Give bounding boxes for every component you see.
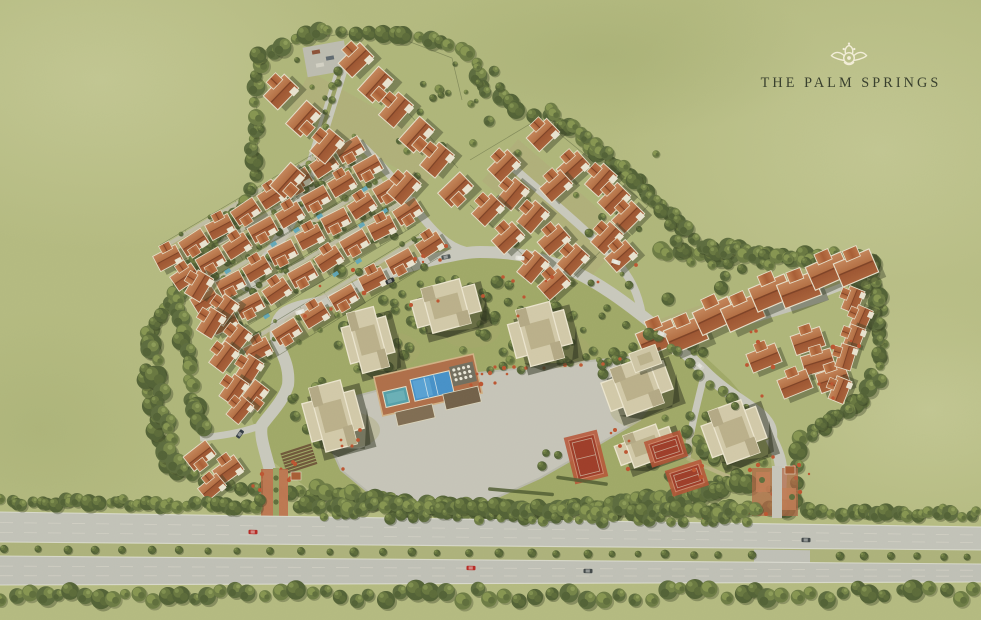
- svg-text:THE PALM SPRINGS: THE PALM SPRINGS: [761, 75, 942, 91]
